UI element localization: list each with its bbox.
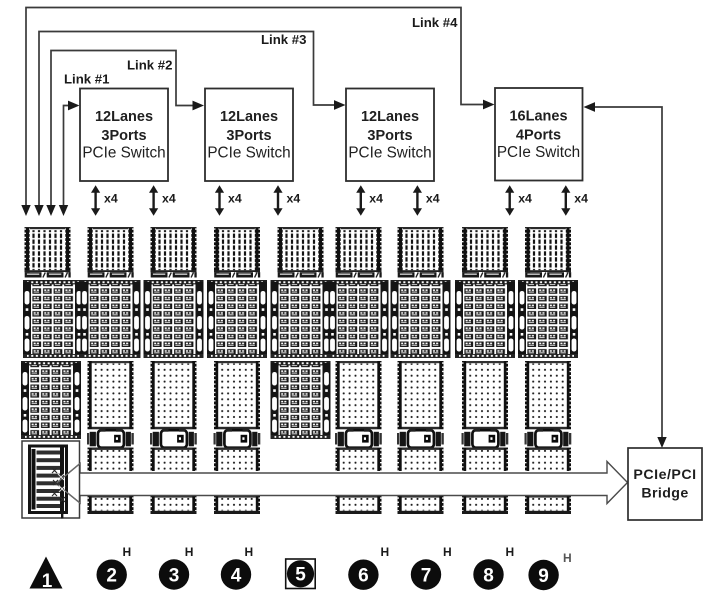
svg-text:1: 1: [42, 571, 53, 592]
svg-text:PCIe Switch: PCIe Switch: [348, 145, 431, 162]
svg-text:H: H: [563, 551, 572, 565]
svg-text:3: 3: [169, 566, 180, 587]
svg-text:PCIe Switch: PCIe Switch: [497, 144, 580, 161]
svg-text:Bridge: Bridge: [641, 486, 688, 502]
svg-text:5: 5: [295, 565, 306, 586]
svg-text:PCIe Switch: PCIe Switch: [207, 145, 290, 162]
svg-text:x4: x4: [518, 192, 532, 206]
svg-text:12Lanes: 12Lanes: [220, 109, 278, 125]
svg-text:4: 4: [231, 566, 242, 587]
svg-text:H: H: [245, 545, 254, 559]
svg-text:PCIe Switch: PCIe Switch: [82, 145, 165, 162]
svg-text:PCIe/PCI: PCIe/PCI: [633, 467, 696, 483]
svg-text:7: 7: [421, 566, 432, 587]
svg-text:12Lanes: 12Lanes: [361, 109, 419, 125]
svg-text:x4: x4: [369, 192, 383, 206]
svg-text:12Lanes: 12Lanes: [95, 109, 153, 125]
svg-text:H: H: [185, 545, 194, 559]
svg-text:x4: x4: [162, 192, 176, 206]
svg-text:x4: x4: [228, 192, 242, 206]
svg-text:Link #4: Link #4: [412, 15, 458, 30]
svg-text:Link #2: Link #2: [127, 58, 172, 73]
svg-text:H: H: [506, 545, 515, 559]
svg-text:2: 2: [106, 566, 117, 587]
svg-text:x4: x4: [574, 192, 588, 206]
svg-text:9: 9: [538, 566, 549, 587]
svg-text:x4: x4: [426, 192, 440, 206]
svg-text:x4: x4: [104, 192, 118, 206]
svg-text:Link #3: Link #3: [261, 32, 306, 47]
svg-text:H: H: [443, 545, 452, 559]
svg-text:H: H: [381, 545, 390, 559]
svg-text:x4: x4: [287, 192, 301, 206]
svg-text:3Ports: 3Ports: [101, 128, 146, 144]
svg-text:3Ports: 3Ports: [367, 128, 412, 144]
svg-text:8: 8: [483, 566, 494, 587]
svg-text:3Ports: 3Ports: [226, 128, 271, 144]
svg-text:Link #1: Link #1: [64, 72, 109, 87]
svg-text:16Lanes: 16Lanes: [509, 109, 567, 125]
svg-text:4Ports: 4Ports: [516, 128, 561, 144]
svg-text:6: 6: [358, 566, 369, 587]
svg-text:H: H: [123, 545, 132, 559]
